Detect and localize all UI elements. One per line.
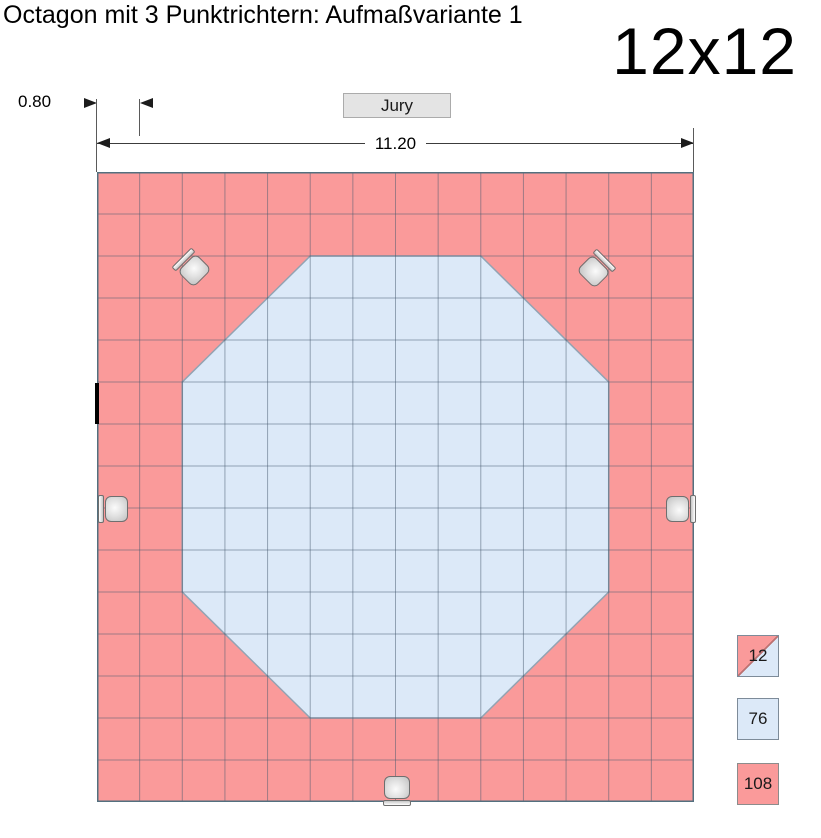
mat-width-dimension-label: 11.20 (97, 134, 694, 154)
tile-width-dimension-label: 0.80 (18, 92, 51, 112)
dimension-line (97, 143, 694, 144)
extension-line (96, 99, 97, 172)
jury-button[interactable]: Jury (343, 93, 451, 118)
legend-split-count: 12 (749, 646, 768, 666)
mat-size-label: 12x12 (612, 18, 797, 84)
chair-seat (666, 496, 689, 522)
page-title: Octagon mit 3 Punktrichtern: Aufmaßvaria… (3, 1, 523, 30)
chair-backrest (98, 495, 104, 523)
legend-inner-tile-swatch: 76 (737, 698, 779, 740)
extension-line (139, 99, 140, 136)
floor-grid (97, 172, 694, 802)
legend-inner-count: 76 (749, 709, 768, 729)
legend-outer-count: 108 (744, 774, 772, 794)
legend-split-tile-swatch: 12 (737, 635, 779, 677)
dimension-arrow-left-icon (97, 138, 110, 148)
judge-chair-right-icon[interactable] (666, 495, 696, 523)
judge-chair-left-icon[interactable] (98, 495, 128, 523)
jury-button-label: Jury (381, 96, 413, 116)
chair-seat (105, 496, 128, 522)
judge-chair-bottom-icon[interactable] (383, 776, 411, 806)
app-canvas: Octagon mit 3 Punktrichtern: Aufmaßvaria… (0, 0, 821, 838)
chair-seat (384, 776, 410, 799)
dimension-arrow-left-icon (140, 98, 153, 108)
chair-backrest (383, 800, 411, 806)
extension-line (693, 128, 694, 172)
chair-backrest (690, 495, 696, 523)
legend-outer-tile-swatch: 108 (737, 763, 779, 805)
edge-cursor-mark (95, 383, 99, 424)
